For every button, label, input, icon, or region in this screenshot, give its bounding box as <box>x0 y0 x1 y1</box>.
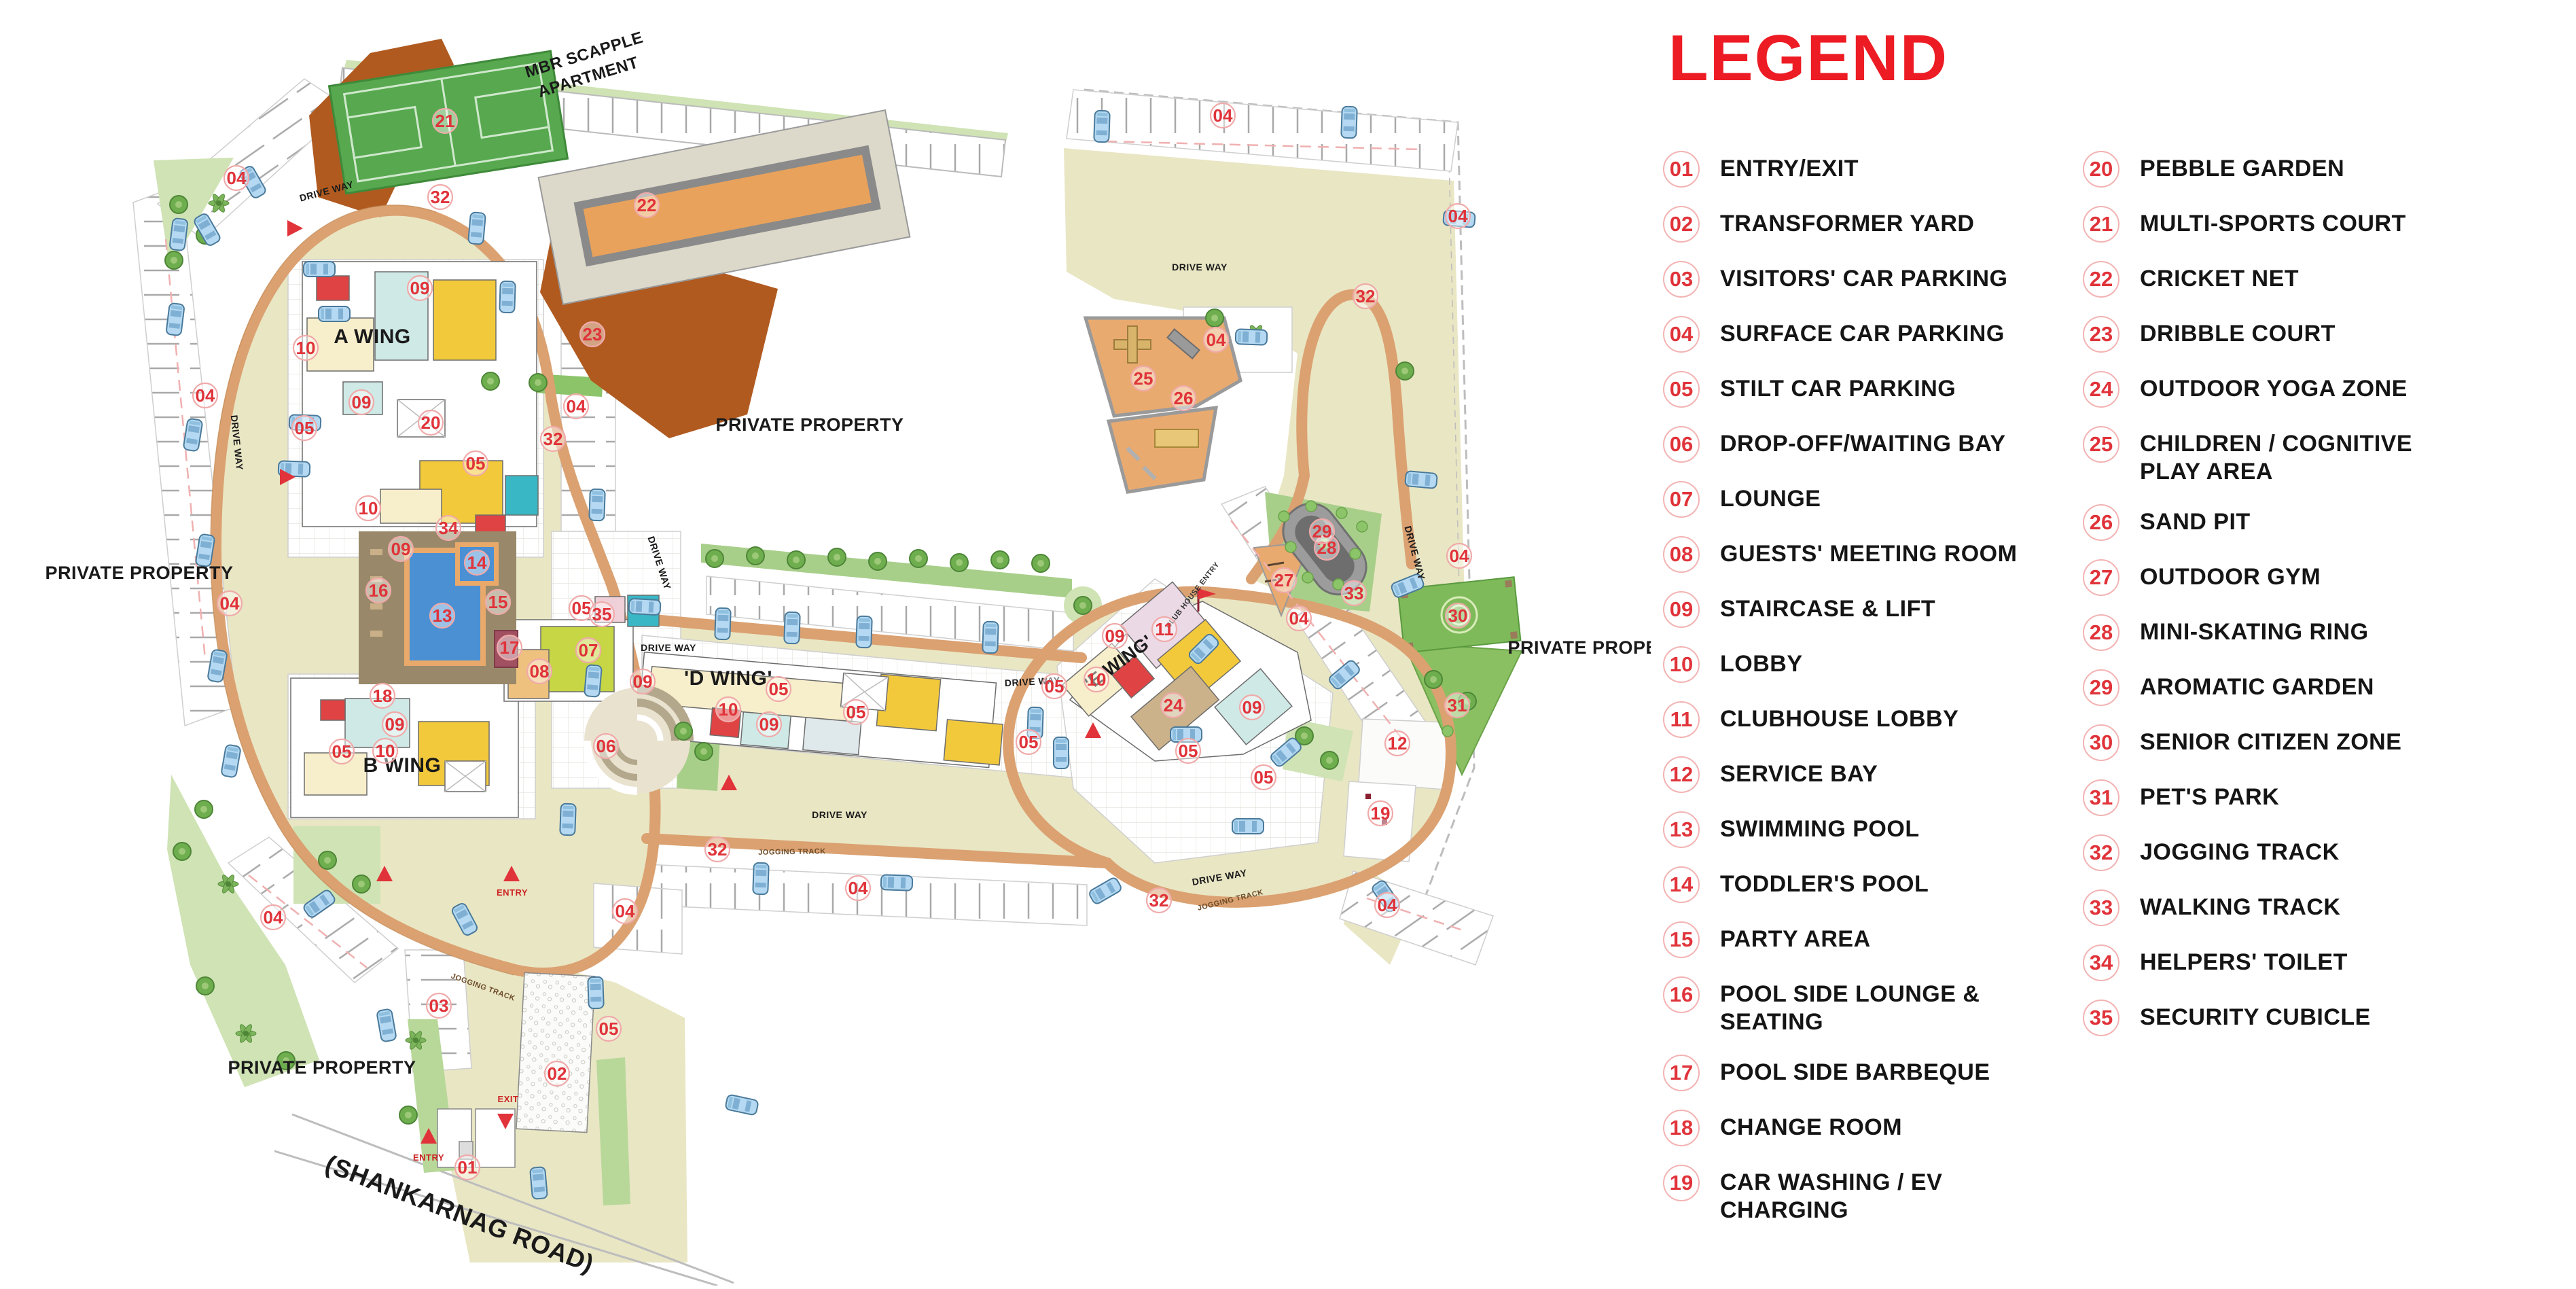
map-marker-27: 27 <box>1272 568 1296 593</box>
legend-item-11: 11CLUBHOUSE LOBBY <box>1663 701 2083 738</box>
legend-item-label: HELPERS' TOILET <box>2140 944 2348 976</box>
map-marker-number: 05 <box>466 453 486 474</box>
map-marker-09: 09 <box>757 712 781 737</box>
map-marker-number: 31 <box>1448 695 1467 716</box>
map-label: A WING <box>334 325 411 348</box>
map-marker-number: 24 <box>1164 695 1183 716</box>
map-marker-05: 05 <box>1251 765 1276 790</box>
map-marker-04: 04 <box>1446 204 1470 228</box>
legend-item-27: 27OUTDOOR GYM <box>2083 559 2558 596</box>
legend-item-label: CLUBHOUSE LOBBY <box>1720 701 1958 733</box>
car-icon <box>753 863 769 895</box>
legend-item-number: 24 <box>2083 371 2119 408</box>
map-marker-number: 11 <box>1155 619 1174 639</box>
car-icon <box>169 218 187 251</box>
legend-item-number: 26 <box>2083 504 2119 541</box>
map-marker-number: 27 <box>1274 570 1294 590</box>
map-marker-32: 32 <box>541 427 565 451</box>
b-wing-building <box>291 678 518 817</box>
tree-icon <box>353 875 370 893</box>
bush-icon <box>1336 508 1347 518</box>
tree-icon <box>675 722 692 740</box>
car-icon <box>560 804 576 836</box>
car-icon <box>715 608 731 640</box>
map-marker-number: 04 <box>1213 105 1233 126</box>
legend-item-label: DRIBBLE COURT <box>2140 316 2336 348</box>
map-marker-number: 09 <box>1242 697 1262 718</box>
map-marker-32: 32 <box>1353 284 1378 308</box>
map-marker-number: 10 <box>296 338 316 358</box>
legend-item-label: VISITORS' CAR PARKING <box>1720 261 2007 293</box>
car-icon <box>1341 107 1357 139</box>
legend-item-19: 19CAR WASHING / EV CHARGING <box>1663 1165 2083 1224</box>
map-marker-number: 05 <box>332 741 352 762</box>
legend-item-label: TRANSFORMER YARD <box>1720 206 1974 238</box>
map-marker-29: 29 <box>1310 519 1334 544</box>
tree-icon <box>1396 362 1414 380</box>
legend-column-2: 20PEBBLE GARDEN21MULTI-SPORTS COURT22CRI… <box>2083 151 2558 1243</box>
legend-item-number: 09 <box>1663 591 1700 628</box>
map-marker-06: 06 <box>594 734 618 758</box>
map-marker-number: 05 <box>846 702 866 722</box>
site-plan-map: MBR SCAPPLEAPARTMENTPRIVATE PROPERTYPRIV… <box>0 0 1651 1286</box>
legend-item-label: OUTDOOR GYM <box>2140 559 2321 591</box>
legend-item-32: 32JOGGING TRACK <box>2083 834 2558 871</box>
map-marker-number: 10 <box>376 741 395 761</box>
legend-item-label: LOBBY <box>1720 646 1803 678</box>
car-icon <box>304 262 335 277</box>
map-marker-number: 05 <box>1045 676 1065 696</box>
legend-item-number: 01 <box>1663 151 1700 188</box>
map-marker-09: 09 <box>349 390 374 414</box>
map-marker-number: 10 <box>719 699 738 720</box>
map-label: PRIVATE PROPERTY <box>1507 637 1651 658</box>
map-marker-number: 33 <box>1344 583 1364 603</box>
map-marker-number: 04 <box>227 168 247 188</box>
map-marker-number: 10 <box>1087 669 1107 690</box>
tree-icon <box>1425 671 1442 688</box>
map-marker-number: 05 <box>1179 741 1198 761</box>
legend-item-number: 25 <box>2083 426 2119 463</box>
map-marker-number: 01 <box>458 1157 478 1178</box>
legend-item-07: 07LOUNGE <box>1663 481 2083 518</box>
legend-item-number: 03 <box>1663 261 1700 298</box>
legend-item-03: 03VISITORS' CAR PARKING <box>1663 261 2083 298</box>
map-marker-number: 32 <box>543 429 563 449</box>
map-marker-number: 25 <box>1134 368 1153 389</box>
car-icon <box>499 281 516 313</box>
car-icon <box>1054 737 1069 769</box>
legend-item-number: 35 <box>2083 1000 2119 1036</box>
map-marker-16: 16 <box>366 578 391 603</box>
tree-icon <box>399 1106 417 1124</box>
car-icon <box>588 977 604 1009</box>
legend-item-label: POOL SIDE BARBEQUE <box>1720 1055 1990 1087</box>
car-icon <box>1232 819 1264 834</box>
legend-item-29: 29AROMATIC GARDEN <box>2083 669 2558 706</box>
map-marker-05: 05 <box>844 700 868 724</box>
legend-item-12: 12SERVICE BAY <box>1663 756 2083 793</box>
legend-item-number: 12 <box>1663 756 1700 793</box>
map-marker-number: 04 <box>196 385 215 406</box>
map-marker-number: 12 <box>1388 733 1408 754</box>
legend-item-10: 10LOBBY <box>1663 646 2083 683</box>
legend-item-label: TODDLER'S POOL <box>1720 866 1929 898</box>
car-icon <box>1094 111 1110 143</box>
map-label: JOGGING TRACK <box>758 847 826 857</box>
map-marker-number: 05 <box>599 1019 619 1039</box>
map-label: ENTRY <box>413 1152 444 1163</box>
map-marker-number: 23 <box>583 324 603 345</box>
map-marker-number: 09 <box>633 671 653 692</box>
legend-item-label: SECURITY CUBICLE <box>2140 1000 2371 1031</box>
map-marker-number: 02 <box>548 1063 567 1084</box>
map-marker-number: 04 <box>567 396 586 417</box>
map-marker-number: 29 <box>1312 521 1332 542</box>
legend-item-label: ENTRY/EXIT <box>1720 151 1859 183</box>
map-marker-number: 05 <box>572 598 592 618</box>
legend-item-16: 16POOL SIDE LOUNGE & SEATING <box>1663 976 2083 1036</box>
map-marker-number: 05 <box>769 679 789 699</box>
map-marker-09: 09 <box>408 276 432 300</box>
legend-item-label: OUTDOOR YOGA ZONE <box>2140 371 2408 403</box>
map-marker-number: 04 <box>848 878 868 898</box>
bush-icon <box>1442 726 1453 737</box>
map-marker-number: 26 <box>1174 388 1194 408</box>
car-icon <box>784 612 800 644</box>
map-marker-number: 13 <box>433 605 452 626</box>
map-marker-number: 04 <box>1378 895 1397 915</box>
legend-item-number: 33 <box>2083 889 2119 926</box>
tree-icon <box>787 551 805 569</box>
legend-item-21: 21MULTI-SPORTS COURT <box>2083 206 2558 243</box>
map-marker-number: 04 <box>1289 608 1309 629</box>
map-marker-number: 15 <box>488 592 508 612</box>
tree-icon <box>1074 597 1092 614</box>
map-label: EXIT <box>498 1094 519 1104</box>
map-marker-33: 33 <box>1342 581 1366 605</box>
map-marker-03: 03 <box>427 993 451 1018</box>
legend-item-label: CHILDREN / COGNITIVE PLAY AREA <box>2140 426 2459 486</box>
legend-item-label: STAIRCASE & LIFT <box>1720 591 1935 623</box>
map-marker-04: 04 <box>1375 893 1399 917</box>
map-marker-04: 04 <box>1287 606 1311 631</box>
legend-item-number: 07 <box>1663 481 1700 518</box>
legend-item-28: 28MINI-SKATING RING <box>2083 614 2558 651</box>
map-marker-number: 09 <box>352 392 372 412</box>
map-marker-number: 32 <box>1149 890 1169 911</box>
map-marker-01: 01 <box>455 1155 480 1180</box>
map-marker-21: 21 <box>433 109 457 133</box>
map-marker-number: 32 <box>431 187 450 207</box>
bush-icon <box>1285 542 1296 552</box>
tree-icon <box>170 196 187 213</box>
map-marker-number: 10 <box>359 498 378 518</box>
map-marker-05: 05 <box>1016 730 1041 754</box>
tree-icon <box>1321 752 1338 769</box>
car-icon <box>589 489 605 521</box>
legend-item-number: 02 <box>1663 206 1700 243</box>
legend-item-label: JOGGING TRACK <box>2140 834 2340 866</box>
car-icon <box>881 875 913 891</box>
car-icon <box>856 616 872 648</box>
map-marker-number: 05 <box>295 418 315 438</box>
legend-item-label: LOUNGE <box>1720 481 1821 513</box>
map-marker-number: 09 <box>385 714 405 735</box>
tree-icon <box>1032 554 1050 572</box>
map-marker-12: 12 <box>1385 731 1410 756</box>
map-marker-05: 05 <box>1042 674 1067 699</box>
tree-icon <box>695 743 713 760</box>
legend-item-number: 20 <box>2083 151 2119 188</box>
bush-icon <box>1357 521 1367 532</box>
map-marker-32: 32 <box>1147 888 1171 913</box>
tree-icon <box>173 843 191 860</box>
tree-icon <box>165 251 183 269</box>
map-label: PRIVATE PROPERTY <box>715 414 904 435</box>
tree-icon <box>747 547 764 565</box>
bush-icon <box>1350 548 1361 559</box>
legend-item-35: 35SECURITY CUBICLE <box>2083 1000 2558 1036</box>
tree-icon <box>950 554 968 571</box>
map-marker-08: 08 <box>527 659 552 684</box>
legend-item-number: 06 <box>1663 426 1700 463</box>
map-marker-number: 09 <box>391 539 411 559</box>
map-marker-09: 09 <box>382 712 407 737</box>
legend-item-number: 11 <box>1663 701 1700 738</box>
transformer-yard <box>516 972 595 1132</box>
legend-item-label: MULTI-SPORTS COURT <box>2140 206 2406 238</box>
map-label: PRIVATE PROPERTY <box>228 1057 416 1078</box>
legend-item-number: 19 <box>1663 1165 1700 1201</box>
legend-item-18: 18CHANGE ROOM <box>1663 1110 2083 1146</box>
map-marker-26: 26 <box>1171 386 1196 410</box>
map-marker-number: 04 <box>1206 330 1226 350</box>
legend-item-label: POOL SIDE LOUNGE & SEATING <box>1720 976 2039 1036</box>
tree-icon <box>482 372 499 390</box>
map-marker-09: 09 <box>1240 695 1264 720</box>
map-marker-04: 04 <box>846 876 870 900</box>
legend-item-label: PET'S PARK <box>2140 779 2279 811</box>
legend-item-number: 14 <box>1663 866 1700 903</box>
map-marker-number: 07 <box>579 640 598 660</box>
car-icon <box>1236 329 1268 345</box>
map-marker-number: 09 <box>410 278 430 298</box>
map-marker-number: 04 <box>264 907 283 928</box>
legend-item-number: 16 <box>1663 976 1700 1013</box>
legend-panel: LEGEND 01ENTRY/EXIT02TRANSFORMER YARD03V… <box>1663 26 2566 1243</box>
legend-item-number: 04 <box>1663 316 1700 353</box>
map-marker-number: 04 <box>1448 206 1468 226</box>
legend-item-label: SURFACE CAR PARKING <box>1720 316 2005 348</box>
map-marker-number: 04 <box>615 901 635 921</box>
map-marker-10: 10 <box>716 697 740 722</box>
legend-item-label: SERVICE BAY <box>1720 756 1878 788</box>
bush-icon <box>1302 572 1313 583</box>
car-icon <box>982 622 999 654</box>
tree-icon <box>869 552 887 570</box>
map-marker-04: 04 <box>564 394 588 419</box>
legend-item-label: PARTY AREA <box>1720 921 1871 953</box>
legend-item-26: 26SAND PIT <box>2083 504 2558 541</box>
legend-item-33: 33WALKING TRACK <box>2083 889 2558 926</box>
car-icon <box>530 1167 548 1199</box>
map-marker-15: 15 <box>486 590 510 614</box>
map-marker-05: 05 <box>292 416 317 440</box>
map-marker-25: 25 <box>1131 366 1156 391</box>
legend-item-14: 14TODDLER'S POOL <box>1663 866 2083 903</box>
map-marker-10: 10 <box>373 739 397 763</box>
car-icon <box>166 303 184 336</box>
map-marker-number: 18 <box>373 686 393 706</box>
map-marker-10: 10 <box>1084 667 1109 692</box>
map-marker-number: 08 <box>530 661 550 682</box>
legend-item-06: 06DROP-OFF/WAITING BAY <box>1663 426 2083 463</box>
map-marker-number: 34 <box>439 518 459 538</box>
map-marker-number: 06 <box>596 736 616 756</box>
legend-item-label: SAND PIT <box>2140 504 2251 536</box>
legend-item-25: 25CHILDREN / COGNITIVE PLAY AREA <box>2083 426 2558 486</box>
map-marker-04: 04 <box>261 905 285 930</box>
sand-pit <box>1155 429 1198 447</box>
legend-item-17: 17POOL SIDE BARBEQUE <box>1663 1055 2083 1091</box>
map-label: DRIVE WAY <box>641 642 696 653</box>
legend-item-number: 32 <box>2083 834 2119 871</box>
map-marker-number: 17 <box>500 637 520 658</box>
map-marker-34: 34 <box>436 516 461 540</box>
site-plan-svg: MBR SCAPPLEAPARTMENTPRIVATE PROPERTYPRIV… <box>0 0 1651 1286</box>
legend-item-number: 13 <box>1663 811 1700 848</box>
map-marker-number: 20 <box>421 412 441 433</box>
legend-item-23: 23DRIBBLE COURT <box>2083 316 2558 353</box>
map-marker-09: 09 <box>389 537 413 561</box>
map-marker-04: 04 <box>613 899 637 923</box>
car-icon <box>584 665 602 697</box>
legend-item-04: 04SURFACE CAR PARKING <box>1663 316 2083 353</box>
tree-icon <box>196 977 214 995</box>
legend-item-label: STILT CAR PARKING <box>1720 371 1956 403</box>
legend-item-number: 28 <box>2083 614 2119 651</box>
map-marker-17: 17 <box>497 635 522 660</box>
legend-item-label: CRICKET NET <box>2140 261 2299 293</box>
legend-item-label: WALKING TRACK <box>2140 889 2340 921</box>
map-marker-05: 05 <box>463 451 488 476</box>
legend-item-number: 30 <box>2083 724 2119 761</box>
legend-item-label: AROMATIC GARDEN <box>2140 669 2374 701</box>
map-marker-22: 22 <box>634 193 659 217</box>
legend-item-number: 27 <box>2083 559 2119 596</box>
map-marker-04: 04 <box>1211 103 1235 128</box>
map-marker-31: 31 <box>1445 693 1469 718</box>
legend-item-08: 08GUESTS' MEETING ROOM <box>1663 536 2083 573</box>
legend-item-label: PEBBLE GARDEN <box>2140 151 2344 183</box>
map-marker-number: 32 <box>708 839 728 860</box>
bush-icon <box>1278 511 1289 522</box>
map-marker-number: 05 <box>1019 732 1039 752</box>
map-marker-number: 22 <box>637 195 657 215</box>
map-label: DRIVE WAY <box>812 809 867 820</box>
legend-item-label: CAR WASHING / EV CHARGING <box>1720 1165 2039 1224</box>
map-marker-30: 30 <box>1446 603 1470 628</box>
legend-item-number: 22 <box>2083 261 2119 298</box>
legend-title: LEGEND <box>1668 26 2566 91</box>
legend-item-number: 10 <box>1663 646 1700 683</box>
map-marker-number: 21 <box>435 111 455 131</box>
bush-icon <box>1306 501 1317 512</box>
map-marker-05: 05 <box>1176 739 1200 763</box>
map-marker-10: 10 <box>356 496 380 520</box>
map-marker-05: 05 <box>596 1017 621 1041</box>
map-marker-number: 14 <box>467 552 487 573</box>
map-marker-07: 07 <box>576 638 601 663</box>
legend-item-number: 05 <box>1663 371 1700 408</box>
map-label: 'D WING' <box>684 667 772 690</box>
map-marker-20: 20 <box>418 410 443 435</box>
legend-item-30: 30SENIOR CITIZEN ZONE <box>2083 724 2558 761</box>
map-marker-number: 04 <box>1450 546 1469 566</box>
map-marker-04: 04 <box>224 166 249 190</box>
map-marker-number: 35 <box>592 604 612 624</box>
legend-item-number: 08 <box>1663 536 1700 573</box>
tree-icon <box>991 551 1009 569</box>
car-icon <box>1405 471 1437 489</box>
map-marker-19: 19 <box>1368 801 1393 826</box>
map-marker-04: 04 <box>1204 328 1228 352</box>
legend-item-31: 31PET'S PARK <box>2083 779 2558 816</box>
map-marker-number: 03 <box>429 995 449 1016</box>
map-marker-number: 19 <box>1371 803 1391 824</box>
legend-column-1: 01ENTRY/EXIT02TRANSFORMER YARD03VISITORS… <box>1663 151 2083 1243</box>
legend-item-05: 05STILT CAR PARKING <box>1663 371 2083 408</box>
legend-item-number: 31 <box>2083 779 2119 816</box>
legend-item-label: SWIMMING POOL <box>1720 811 1920 843</box>
tree-icon <box>910 550 927 567</box>
map-marker-35: 35 <box>590 602 614 626</box>
tree-icon <box>706 550 723 567</box>
map-marker-13: 13 <box>430 603 454 628</box>
map-marker-number: 05 <box>1254 767 1274 788</box>
legend-item-24: 24OUTDOOR YOGA ZONE <box>2083 371 2558 408</box>
legend-item-13: 13SWIMMING POOL <box>1663 811 2083 848</box>
legend-item-number: 17 <box>1663 1055 1700 1091</box>
map-marker-11: 11 <box>1152 617 1177 641</box>
legend-item-label: DROP-OFF/WAITING BAY <box>1720 426 2006 458</box>
map-marker-05: 05 <box>329 739 354 764</box>
map-marker-number: 32 <box>1356 286 1376 306</box>
map-marker-23: 23 <box>580 322 605 347</box>
map-marker-10: 10 <box>293 336 318 360</box>
legend-item-number: 34 <box>2083 944 2119 981</box>
legend-item-15: 15PARTY AREA <box>1663 921 2083 958</box>
car-icon <box>319 306 350 321</box>
legend-item-label: MINI-SKATING RING <box>2140 614 2369 646</box>
map-marker-number: 09 <box>1105 626 1125 646</box>
car-icon <box>468 212 486 245</box>
legend-item-label: GUESTS' MEETING ROOM <box>1720 536 2017 568</box>
legend-item-02: 02TRANSFORMER YARD <box>1663 206 2083 243</box>
map-marker-14: 14 <box>465 550 489 575</box>
map-marker-02: 02 <box>545 1061 569 1086</box>
tree-icon <box>319 851 336 869</box>
tree-icon <box>828 548 846 566</box>
legend-columns: 01ENTRY/EXIT02TRANSFORMER YARD03VISITORS… <box>1663 151 2566 1243</box>
map-label: DRIVE WAY <box>1172 262 1228 272</box>
map-label: PRIVATE PROPERTY <box>45 563 233 583</box>
map-marker-number: 04 <box>220 593 240 614</box>
legend-item-09: 09STAIRCASE & LIFT <box>1663 591 2083 628</box>
legend-item-number: 18 <box>1663 1110 1700 1146</box>
map-marker-24: 24 <box>1161 693 1185 718</box>
